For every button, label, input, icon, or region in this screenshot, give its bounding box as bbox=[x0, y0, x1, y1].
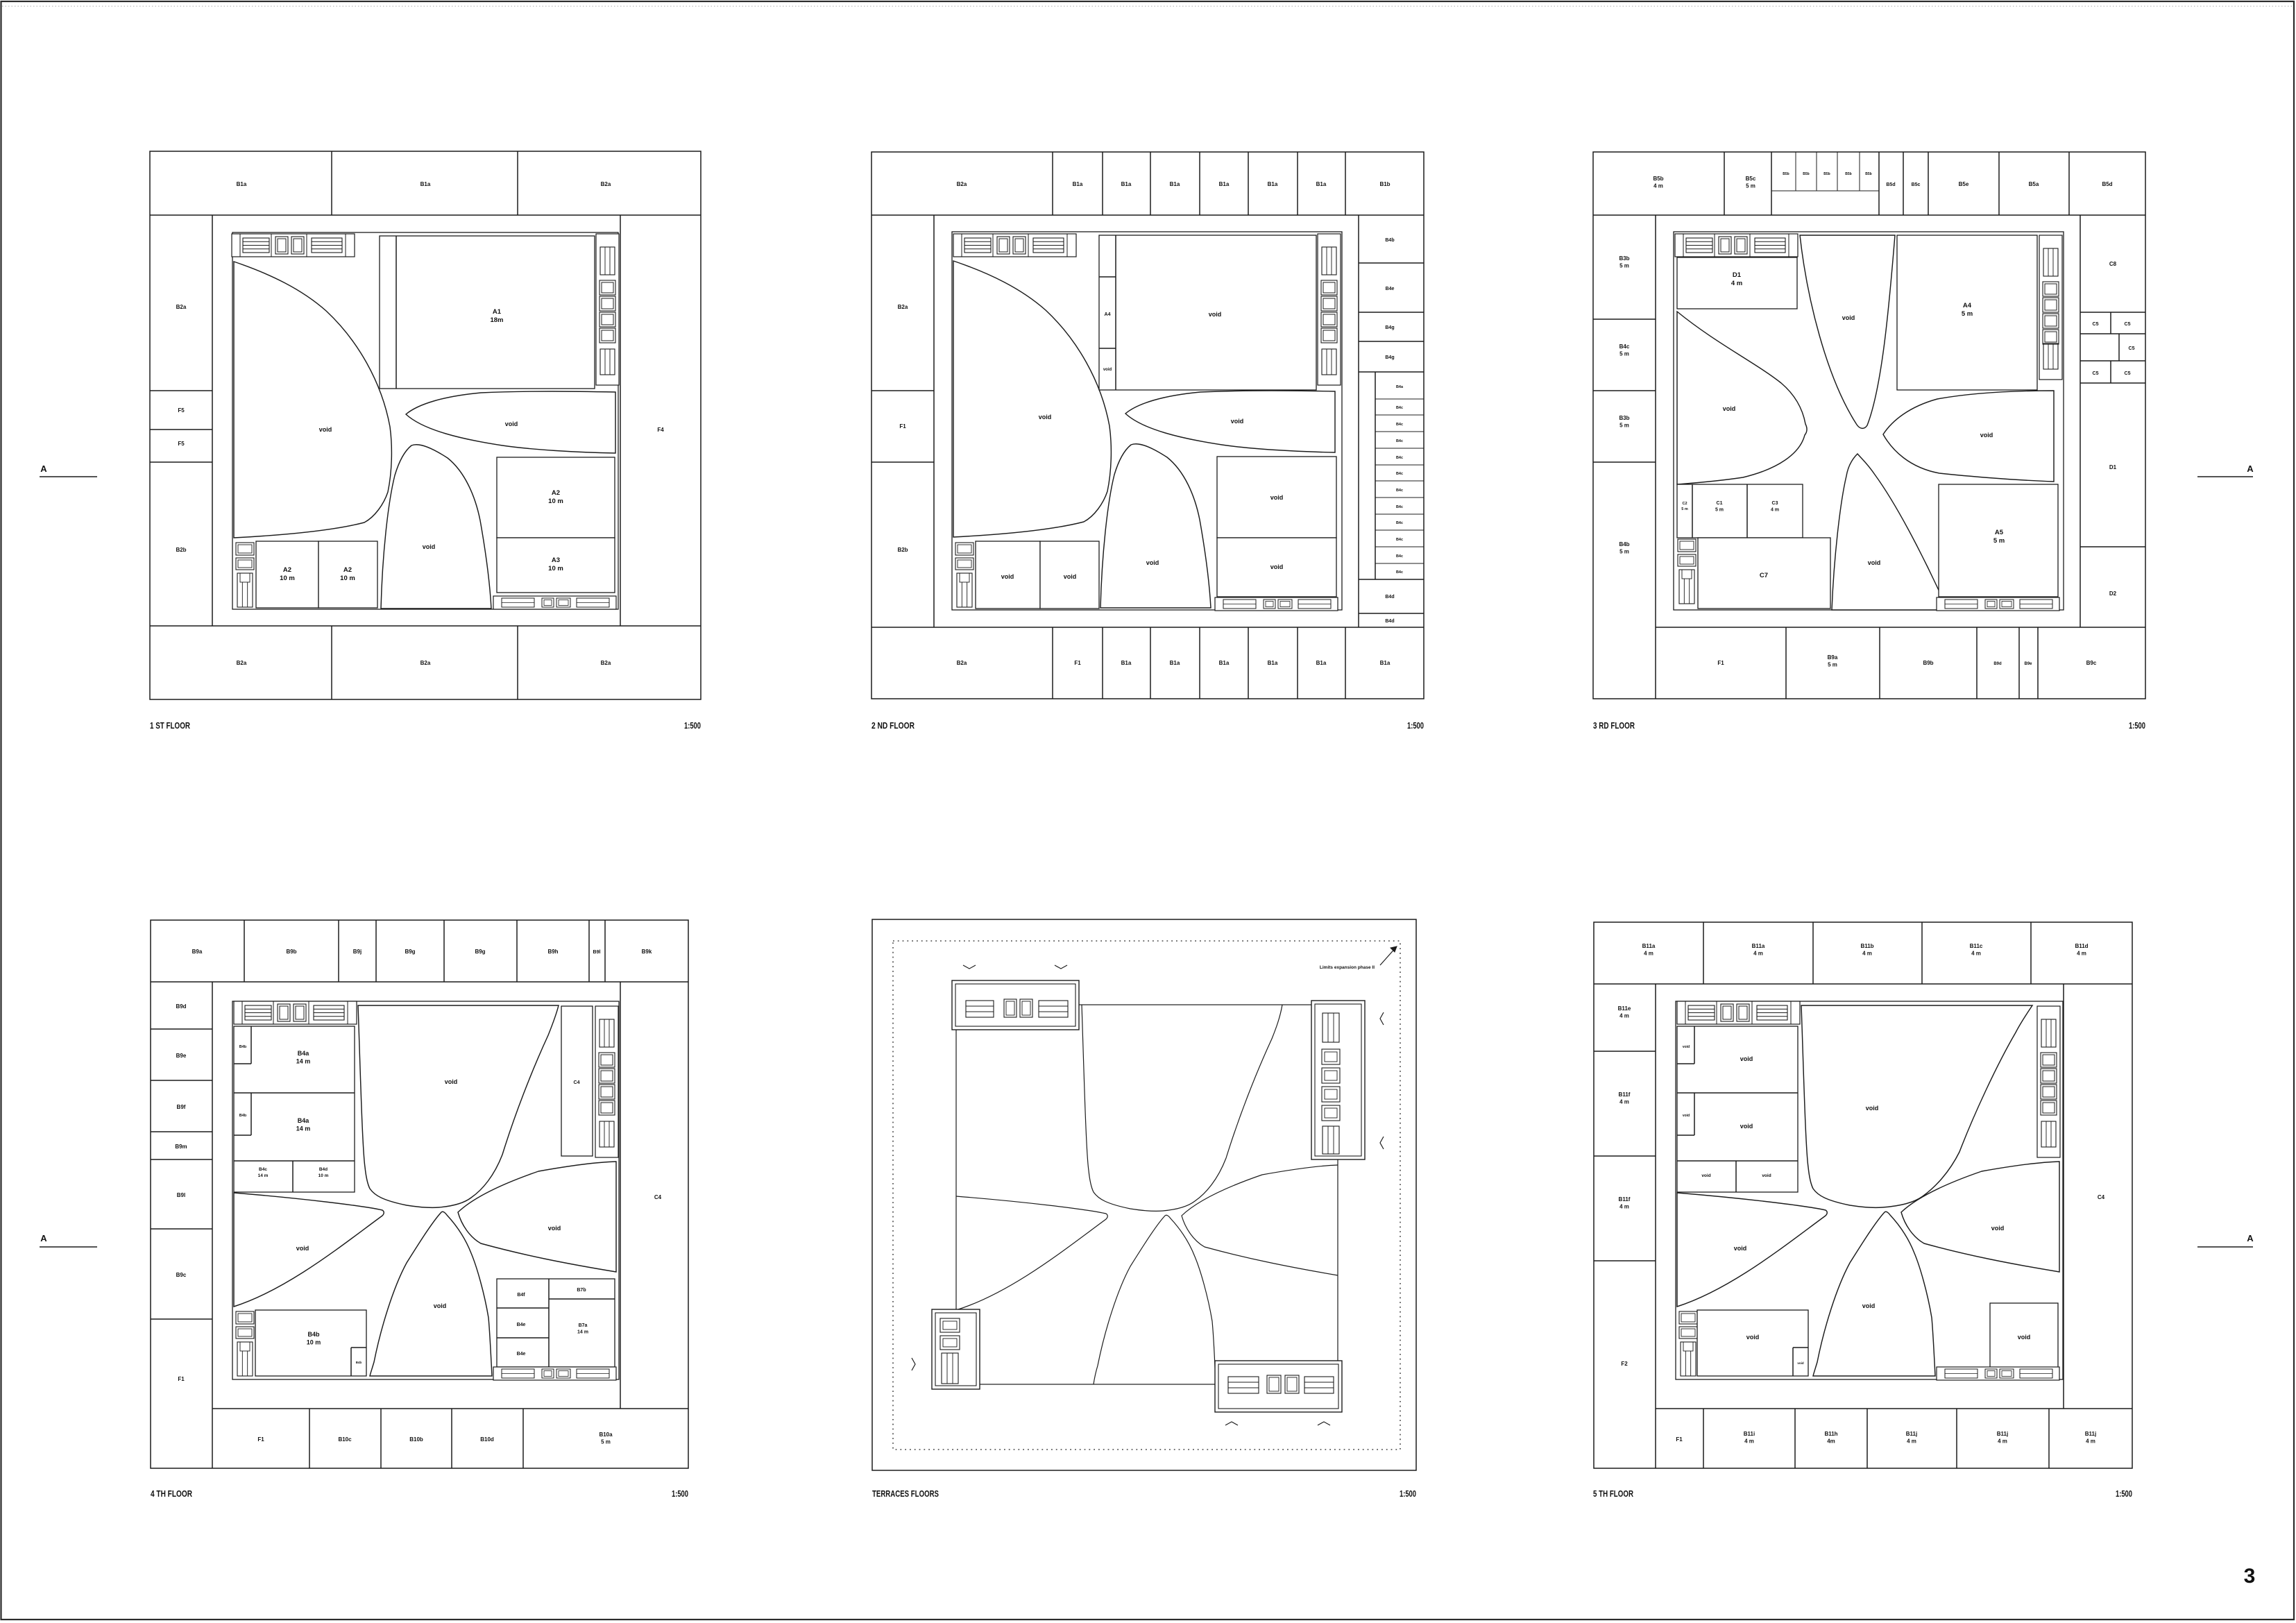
svg-text:B11i: B11i bbox=[1744, 1431, 1755, 1437]
svg-text:1:500: 1:500 bbox=[2116, 1489, 2132, 1499]
svg-text:B2a: B2a bbox=[176, 304, 187, 310]
svg-text:B9e: B9e bbox=[176, 1053, 187, 1059]
svg-text:B9k: B9k bbox=[642, 949, 652, 955]
svg-text:B10a: B10a bbox=[599, 1431, 613, 1438]
svg-text:B4e: B4e bbox=[517, 1352, 526, 1357]
svg-text:4 m: 4 m bbox=[1653, 183, 1663, 189]
svg-text:1:500: 1:500 bbox=[684, 721, 701, 731]
svg-text:4 m: 4 m bbox=[1998, 1438, 2007, 1445]
svg-text:18m: 18m bbox=[490, 316, 503, 324]
svg-text:2 ND FLOOR: 2 ND FLOOR bbox=[871, 721, 915, 731]
svg-text:void: void bbox=[1734, 1245, 1747, 1252]
svg-text:5 m: 5 m bbox=[1619, 423, 1629, 429]
svg-text:B2b: B2b bbox=[176, 547, 186, 553]
svg-text:B9j: B9j bbox=[353, 949, 362, 955]
svg-text:A2: A2 bbox=[343, 566, 352, 574]
svg-text:4 m: 4 m bbox=[1644, 951, 1653, 957]
svg-text:B4a: B4a bbox=[298, 1050, 310, 1057]
svg-text:B1a: B1a bbox=[1219, 181, 1230, 187]
svg-text:F5: F5 bbox=[178, 441, 185, 447]
svg-text:B9f: B9f bbox=[177, 1104, 186, 1110]
svg-text:void: void bbox=[505, 420, 518, 427]
svg-text:void: void bbox=[296, 1245, 309, 1252]
svg-text:B4d: B4d bbox=[1385, 595, 1394, 600]
svg-text:5 m: 5 m bbox=[1619, 549, 1629, 555]
svg-text:5 m: 5 m bbox=[1962, 310, 1973, 318]
svg-text:B10d: B10d bbox=[480, 1436, 494, 1443]
svg-text:B9l: B9l bbox=[593, 950, 601, 955]
svg-text:B1a: B1a bbox=[1121, 181, 1132, 187]
svg-text:D1: D1 bbox=[2109, 464, 2117, 470]
svg-text:B5b: B5b bbox=[1803, 172, 1809, 176]
svg-text:B11j: B11j bbox=[1997, 1431, 2008, 1437]
svg-text:A5: A5 bbox=[1995, 529, 2004, 536]
svg-text:B1a: B1a bbox=[1268, 181, 1278, 187]
svg-text:A4: A4 bbox=[1105, 312, 1111, 317]
svg-text:B1a: B1a bbox=[1121, 660, 1132, 666]
svg-text:void: void bbox=[1683, 1045, 1690, 1049]
svg-text:1:500: 1:500 bbox=[1400, 1489, 1416, 1499]
svg-text:A: A bbox=[2247, 464, 2254, 474]
svg-text:B5b: B5b bbox=[1823, 172, 1830, 176]
svg-text:B11d: B11d bbox=[2075, 943, 2088, 949]
svg-text:4 m: 4 m bbox=[1753, 951, 1763, 957]
svg-text:4 m: 4 m bbox=[2086, 1438, 2095, 1445]
svg-text:B4g: B4g bbox=[1385, 325, 1394, 330]
svg-text:B9h: B9h bbox=[547, 949, 558, 955]
svg-text:B5a: B5a bbox=[2029, 181, 2039, 187]
svg-text:void: void bbox=[1842, 314, 1855, 321]
svg-text:C5: C5 bbox=[2125, 371, 2131, 376]
svg-text:1:500: 1:500 bbox=[1407, 721, 1424, 731]
svg-text:A4: A4 bbox=[1963, 302, 1972, 309]
svg-text:B4a: B4a bbox=[298, 1117, 310, 1124]
svg-text:B4c: B4c bbox=[1396, 439, 1403, 443]
svg-text:B11h: B11h bbox=[1824, 1431, 1837, 1437]
svg-text:3 RD FLOOR: 3 RD FLOOR bbox=[1593, 721, 1635, 731]
svg-text:B5d: B5d bbox=[1886, 182, 1895, 187]
svg-text:void: void bbox=[1723, 405, 1736, 412]
svg-text:5 m: 5 m bbox=[1681, 507, 1688, 511]
svg-text:A1: A1 bbox=[493, 308, 502, 316]
svg-text:14 m: 14 m bbox=[577, 1330, 588, 1335]
svg-text:B4d: B4d bbox=[319, 1167, 328, 1172]
svg-text:4 m: 4 m bbox=[1731, 280, 1742, 287]
svg-text:10 m: 10 m bbox=[307, 1339, 321, 1346]
svg-text:void: void bbox=[319, 426, 332, 433]
svg-text:B5b: B5b bbox=[1865, 172, 1871, 176]
svg-text:void: void bbox=[1991, 1225, 2005, 1232]
svg-text:4 m: 4 m bbox=[1907, 1438, 1916, 1445]
svg-text:B10b: B10b bbox=[409, 1436, 423, 1443]
svg-text:B7b: B7b bbox=[577, 1288, 586, 1293]
svg-text:B2a: B2a bbox=[601, 660, 611, 666]
svg-text:F1: F1 bbox=[178, 1376, 185, 1382]
svg-text:C5: C5 bbox=[2129, 346, 2135, 351]
svg-text:B4c: B4c bbox=[1396, 521, 1403, 525]
svg-text:C3: C3 bbox=[1772, 501, 1778, 506]
svg-text:B7a: B7a bbox=[579, 1323, 588, 1328]
svg-text:B1a: B1a bbox=[1380, 660, 1391, 666]
svg-text:B9g: B9g bbox=[475, 949, 485, 955]
svg-text:B9c: B9c bbox=[2086, 660, 2097, 666]
svg-text:B9b: B9b bbox=[286, 949, 296, 955]
svg-text:B4c: B4c bbox=[1396, 456, 1403, 460]
svg-text:B4c: B4c bbox=[259, 1167, 267, 1172]
svg-text:void: void bbox=[423, 543, 436, 550]
svg-text:4 m: 4 m bbox=[1771, 508, 1779, 513]
svg-text:5 m: 5 m bbox=[1993, 537, 2005, 545]
svg-text:4 m: 4 m bbox=[1619, 1099, 1629, 1105]
svg-text:B9g: B9g bbox=[405, 949, 415, 955]
svg-text:void: void bbox=[548, 1225, 561, 1232]
svg-text:B4c: B4c bbox=[1619, 343, 1630, 350]
svg-text:5 m: 5 m bbox=[1619, 263, 1629, 269]
svg-text:B9d: B9d bbox=[176, 1003, 186, 1010]
svg-text:F4: F4 bbox=[657, 427, 664, 433]
svg-text:B2a: B2a bbox=[601, 181, 611, 187]
svg-text:F2: F2 bbox=[1621, 1361, 1628, 1367]
svg-text:5 m: 5 m bbox=[1715, 508, 1724, 513]
svg-text:1:500: 1:500 bbox=[672, 1489, 688, 1499]
svg-text:B5b: B5b bbox=[1653, 176, 1663, 182]
svg-text:B1a: B1a bbox=[420, 181, 431, 187]
svg-text:void: void bbox=[1740, 1123, 1753, 1130]
svg-text:B9m: B9m bbox=[175, 1144, 187, 1150]
svg-text:C4: C4 bbox=[654, 1194, 662, 1200]
svg-text:3: 3 bbox=[2244, 1565, 2256, 1588]
svg-text:B4d: B4d bbox=[1385, 619, 1394, 624]
svg-text:void: void bbox=[1103, 368, 1112, 372]
svg-text:void: void bbox=[1740, 1055, 1753, 1062]
svg-text:C8: C8 bbox=[2109, 261, 2117, 267]
svg-text:B11f: B11f bbox=[1619, 1091, 1631, 1098]
svg-text:B5b: B5b bbox=[1845, 172, 1851, 176]
svg-text:B11j: B11j bbox=[1906, 1431, 1917, 1437]
svg-text:C7: C7 bbox=[1760, 572, 1768, 579]
svg-text:B9l: B9l bbox=[177, 1192, 185, 1198]
svg-text:C4: C4 bbox=[2098, 1194, 2105, 1200]
svg-text:B4e: B4e bbox=[1386, 287, 1395, 291]
svg-text:B4g: B4g bbox=[1385, 355, 1394, 360]
svg-text:B1a: B1a bbox=[1170, 181, 1180, 187]
svg-text:14 m: 14 m bbox=[296, 1058, 311, 1065]
svg-text:C4: C4 bbox=[574, 1080, 580, 1085]
svg-text:F1: F1 bbox=[1676, 1436, 1683, 1443]
svg-text:D2: D2 bbox=[2109, 590, 2117, 597]
svg-text:Limits expansion phase II: Limits expansion phase II bbox=[1320, 965, 1375, 970]
svg-text:B11b: B11b bbox=[1860, 943, 1873, 949]
svg-text:B9b: B9b bbox=[1923, 660, 1933, 666]
svg-text:A: A bbox=[40, 1233, 47, 1243]
svg-text:B3b: B3b bbox=[1619, 415, 1629, 421]
svg-text:void: void bbox=[1862, 1302, 1876, 1309]
svg-text:B4b: B4b bbox=[356, 1361, 362, 1364]
svg-text:B9a: B9a bbox=[192, 949, 203, 955]
svg-text:5 m: 5 m bbox=[1746, 183, 1755, 189]
svg-text:B9a: B9a bbox=[1828, 654, 1838, 661]
svg-text:void: void bbox=[1746, 1334, 1760, 1341]
svg-text:B9c: B9c bbox=[176, 1272, 187, 1278]
svg-text:5 TH FLOOR: 5 TH FLOOR bbox=[1593, 1489, 1633, 1499]
svg-text:B11j: B11j bbox=[2085, 1431, 2096, 1437]
svg-text:A2: A2 bbox=[283, 566, 291, 574]
svg-text:B4c: B4c bbox=[1396, 423, 1403, 427]
svg-text:void: void bbox=[1270, 563, 1284, 570]
svg-text:B4c: B4c bbox=[1396, 570, 1403, 575]
svg-text:A2: A2 bbox=[552, 489, 560, 497]
svg-text:B2b: B2b bbox=[897, 547, 908, 553]
svg-text:B4c: B4c bbox=[1396, 406, 1403, 410]
svg-text:10 m: 10 m bbox=[548, 498, 563, 505]
svg-text:B5d: B5d bbox=[2102, 181, 2112, 187]
svg-text:void: void bbox=[1701, 1173, 1710, 1178]
svg-text:B5e: B5e bbox=[1959, 181, 1969, 187]
svg-text:B1a: B1a bbox=[1316, 660, 1327, 666]
svg-text:void: void bbox=[1762, 1173, 1771, 1178]
svg-text:TERRACES FLOORS: TERRACES FLOORS bbox=[872, 1489, 939, 1499]
svg-text:B4b: B4b bbox=[307, 1331, 320, 1338]
svg-text:B4c: B4c bbox=[1396, 488, 1403, 493]
svg-text:4 m: 4 m bbox=[2077, 951, 2086, 957]
svg-text:void: void bbox=[2018, 1334, 2031, 1341]
svg-text:B10c: B10c bbox=[338, 1436, 352, 1443]
svg-text:10 m: 10 m bbox=[548, 565, 563, 572]
svg-text:F1: F1 bbox=[899, 423, 906, 430]
svg-text:A: A bbox=[2247, 1233, 2254, 1243]
svg-text:void: void bbox=[1797, 1361, 1804, 1365]
svg-text:B1a: B1a bbox=[237, 181, 247, 187]
svg-text:C1: C1 bbox=[1717, 501, 1723, 506]
svg-text:10 m: 10 m bbox=[280, 575, 295, 582]
svg-text:B4e: B4e bbox=[517, 1323, 526, 1327]
svg-text:B1b: B1b bbox=[1379, 181, 1390, 187]
svg-text:4 m: 4 m bbox=[1971, 951, 1981, 957]
svg-text:B9e: B9e bbox=[2024, 662, 2032, 666]
svg-text:B9d: B9d bbox=[1993, 662, 2002, 666]
svg-text:4 m: 4 m bbox=[1619, 1013, 1629, 1019]
svg-text:B4b: B4b bbox=[239, 1114, 247, 1118]
svg-text:B11f: B11f bbox=[1619, 1196, 1631, 1203]
svg-text:14 m: 14 m bbox=[258, 1173, 269, 1178]
svg-text:B1a: B1a bbox=[1268, 660, 1278, 666]
svg-text:void: void bbox=[1001, 573, 1014, 580]
svg-text:1 ST FLOOR: 1 ST FLOOR bbox=[150, 721, 190, 731]
svg-text:B4b: B4b bbox=[1619, 541, 1629, 547]
svg-text:5 m: 5 m bbox=[1619, 351, 1629, 357]
svg-text:B5c: B5c bbox=[1912, 182, 1921, 187]
svg-text:void: void bbox=[1868, 559, 1881, 566]
svg-text:4 m: 4 m bbox=[1619, 1204, 1629, 1210]
svg-text:F1: F1 bbox=[1717, 660, 1724, 666]
svg-text:B1a: B1a bbox=[1073, 181, 1083, 187]
svg-text:void: void bbox=[445, 1078, 458, 1085]
svg-text:B2a: B2a bbox=[237, 660, 247, 666]
svg-text:14 m: 14 m bbox=[296, 1125, 311, 1132]
svg-text:B2a: B2a bbox=[957, 660, 967, 666]
svg-text:A3: A3 bbox=[552, 556, 560, 564]
svg-text:void: void bbox=[1064, 573, 1077, 580]
svg-text:B5c: B5c bbox=[1746, 176, 1756, 182]
svg-text:C5: C5 bbox=[2125, 322, 2131, 327]
svg-text:B4f: B4f bbox=[517, 1293, 525, 1298]
svg-text:4 TH FLOOR: 4 TH FLOOR bbox=[151, 1489, 192, 1499]
svg-text:void: void bbox=[1980, 432, 1993, 439]
svg-text:1:500: 1:500 bbox=[2129, 721, 2145, 731]
svg-text:5 m: 5 m bbox=[1828, 662, 1837, 668]
svg-text:B11a: B11a bbox=[1642, 943, 1656, 949]
svg-text:void: void bbox=[434, 1302, 447, 1309]
svg-text:4m: 4m bbox=[1827, 1438, 1835, 1445]
svg-text:B4c: B4c bbox=[1396, 538, 1403, 542]
svg-text:D1: D1 bbox=[1733, 271, 1742, 279]
svg-text:B4c: B4c bbox=[1396, 472, 1403, 476]
svg-text:B2a: B2a bbox=[957, 181, 967, 187]
svg-text:void: void bbox=[1270, 494, 1284, 501]
svg-text:B1a: B1a bbox=[1219, 660, 1230, 666]
svg-text:void: void bbox=[1683, 1114, 1690, 1118]
svg-text:B4b: B4b bbox=[239, 1045, 247, 1049]
svg-text:C5: C5 bbox=[2093, 371, 2099, 376]
svg-text:B4b: B4b bbox=[1385, 238, 1394, 243]
svg-text:void: void bbox=[1146, 559, 1159, 566]
svg-text:B1a: B1a bbox=[1316, 181, 1327, 187]
svg-text:C2: C2 bbox=[1682, 502, 1687, 506]
svg-text:B11a: B11a bbox=[1752, 943, 1765, 949]
svg-text:10 m: 10 m bbox=[340, 575, 355, 582]
svg-text:F1: F1 bbox=[257, 1436, 264, 1443]
svg-text:B3b: B3b bbox=[1619, 255, 1629, 262]
svg-text:F5: F5 bbox=[178, 407, 185, 414]
svg-text:C5: C5 bbox=[2093, 322, 2099, 327]
svg-text:4 m: 4 m bbox=[1862, 951, 1872, 957]
svg-text:B4c: B4c bbox=[1396, 554, 1403, 559]
svg-text:B2a: B2a bbox=[898, 304, 908, 310]
svg-text:B2a: B2a bbox=[420, 660, 431, 666]
svg-text:F1: F1 bbox=[1074, 660, 1081, 666]
svg-text:B11e: B11e bbox=[1618, 1005, 1631, 1012]
svg-text:5 m: 5 m bbox=[601, 1439, 611, 1445]
svg-text:A: A bbox=[40, 464, 47, 474]
svg-text:void: void bbox=[1231, 418, 1244, 425]
svg-text:10 m: 10 m bbox=[318, 1173, 329, 1178]
svg-text:B4a: B4a bbox=[1396, 385, 1404, 389]
svg-text:4 m: 4 m bbox=[1744, 1438, 1754, 1445]
svg-text:void: void bbox=[1866, 1105, 1879, 1112]
svg-text:B4c: B4c bbox=[1396, 505, 1403, 509]
svg-text:B1a: B1a bbox=[1170, 660, 1180, 666]
svg-text:B11c: B11c bbox=[1970, 943, 1983, 949]
svg-text:void: void bbox=[1039, 414, 1052, 420]
svg-text:B5b: B5b bbox=[1783, 172, 1789, 176]
svg-text:void: void bbox=[1209, 311, 1222, 318]
